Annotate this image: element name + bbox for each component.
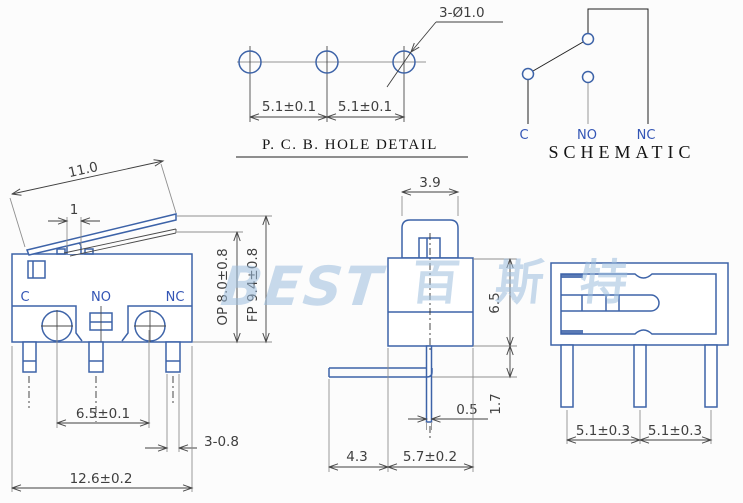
dim-lever-overhang: 4.3: [346, 449, 367, 465]
dim-body-depth: 5.7±0.2: [403, 449, 457, 465]
dim-side-body-height: 6.5: [487, 292, 503, 313]
schematic-switch-arm: [533, 42, 583, 71]
dim-pin-thickness: 0.5: [456, 402, 477, 418]
front-label-nc: NC: [166, 290, 185, 305]
end-hinge-mark-bottom: [561, 330, 583, 334]
dim-cap-width: 3.9: [419, 175, 440, 191]
pcb-hole-detail-title: P. C. B. HOLE DETAIL: [262, 137, 438, 153]
schematic-label-no: NO: [577, 128, 597, 143]
dim-terminal-span: 6.5±0.1: [76, 406, 130, 422]
side-view: 3.9 6.5 1.7 0.5 4.3 5.7±0.2: [329, 175, 517, 472]
front-label-no: NO: [91, 290, 111, 305]
drawing-canvas: 5.1±0.1 5.1±0.1 3-Ø1.0 P. C. B. HOLE DET…: [0, 0, 743, 503]
dim-hole-pitch-left: 5.1±0.1: [262, 99, 316, 115]
end-pin-2: [634, 345, 646, 407]
front-label-c: C: [20, 290, 29, 305]
schematic-contact-c: [523, 69, 534, 80]
end-hinge-mark-top: [561, 274, 583, 278]
side-pin: [427, 346, 432, 422]
dim-lever-length: 11.0: [67, 159, 100, 181]
front-view: C NO NC 11.0 1 OP 8.0±0.8 FP 9.4±0.8 6.5…: [10, 159, 272, 492]
schematic-label-c: C: [519, 128, 528, 143]
pin-no: [89, 342, 103, 372]
schematic-nc-wire: [588, 9, 648, 124]
dim-fp-height: FP 9.4±0.8: [245, 248, 261, 322]
end-pin-1: [561, 345, 573, 407]
dim-hole-callout: 3-Ø1.0: [439, 5, 485, 21]
schematic-view: C NO NC SCHEMATIC: [519, 9, 695, 162]
microswitch-technical-drawing: 5.1±0.1 5.1±0.1 3-Ø1.0 P. C. B. HOLE DET…: [0, 0, 743, 503]
side-plunger: [419, 238, 440, 258]
schematic-title: SCHEMATIC: [548, 142, 695, 162]
schematic-label-nc: NC: [637, 128, 656, 143]
dim-pin-pitch-right: 5.1±0.3: [648, 423, 702, 439]
side-lever: [329, 368, 432, 377]
schematic-contact-no: [583, 72, 594, 83]
dim-plunger-width: 1: [70, 202, 79, 218]
dim-pin-offset: 1.7: [488, 393, 504, 414]
dim-pin-width: 3-0.8: [204, 434, 239, 450]
pin-nc: [166, 342, 180, 372]
schematic-contact-top: [583, 34, 594, 45]
dim-pin-pitch-left: 5.1±0.3: [576, 423, 630, 439]
end-pin-3: [705, 345, 717, 407]
pcb-hole-detail-view: 5.1±0.1 5.1±0.1 3-Ø1.0 P. C. B. HOLE DET…: [236, 5, 503, 157]
dim-body-width: 12.6±0.2: [70, 471, 133, 487]
dim-op-height: OP 8.0±0.8: [215, 248, 231, 325]
end-view: 5.1±0.3 5.1±0.3: [551, 263, 728, 444]
pin-c: [23, 342, 36, 372]
dim-hole-pitch-right: 5.1±0.1: [338, 99, 392, 115]
side-body: [388, 258, 473, 346]
